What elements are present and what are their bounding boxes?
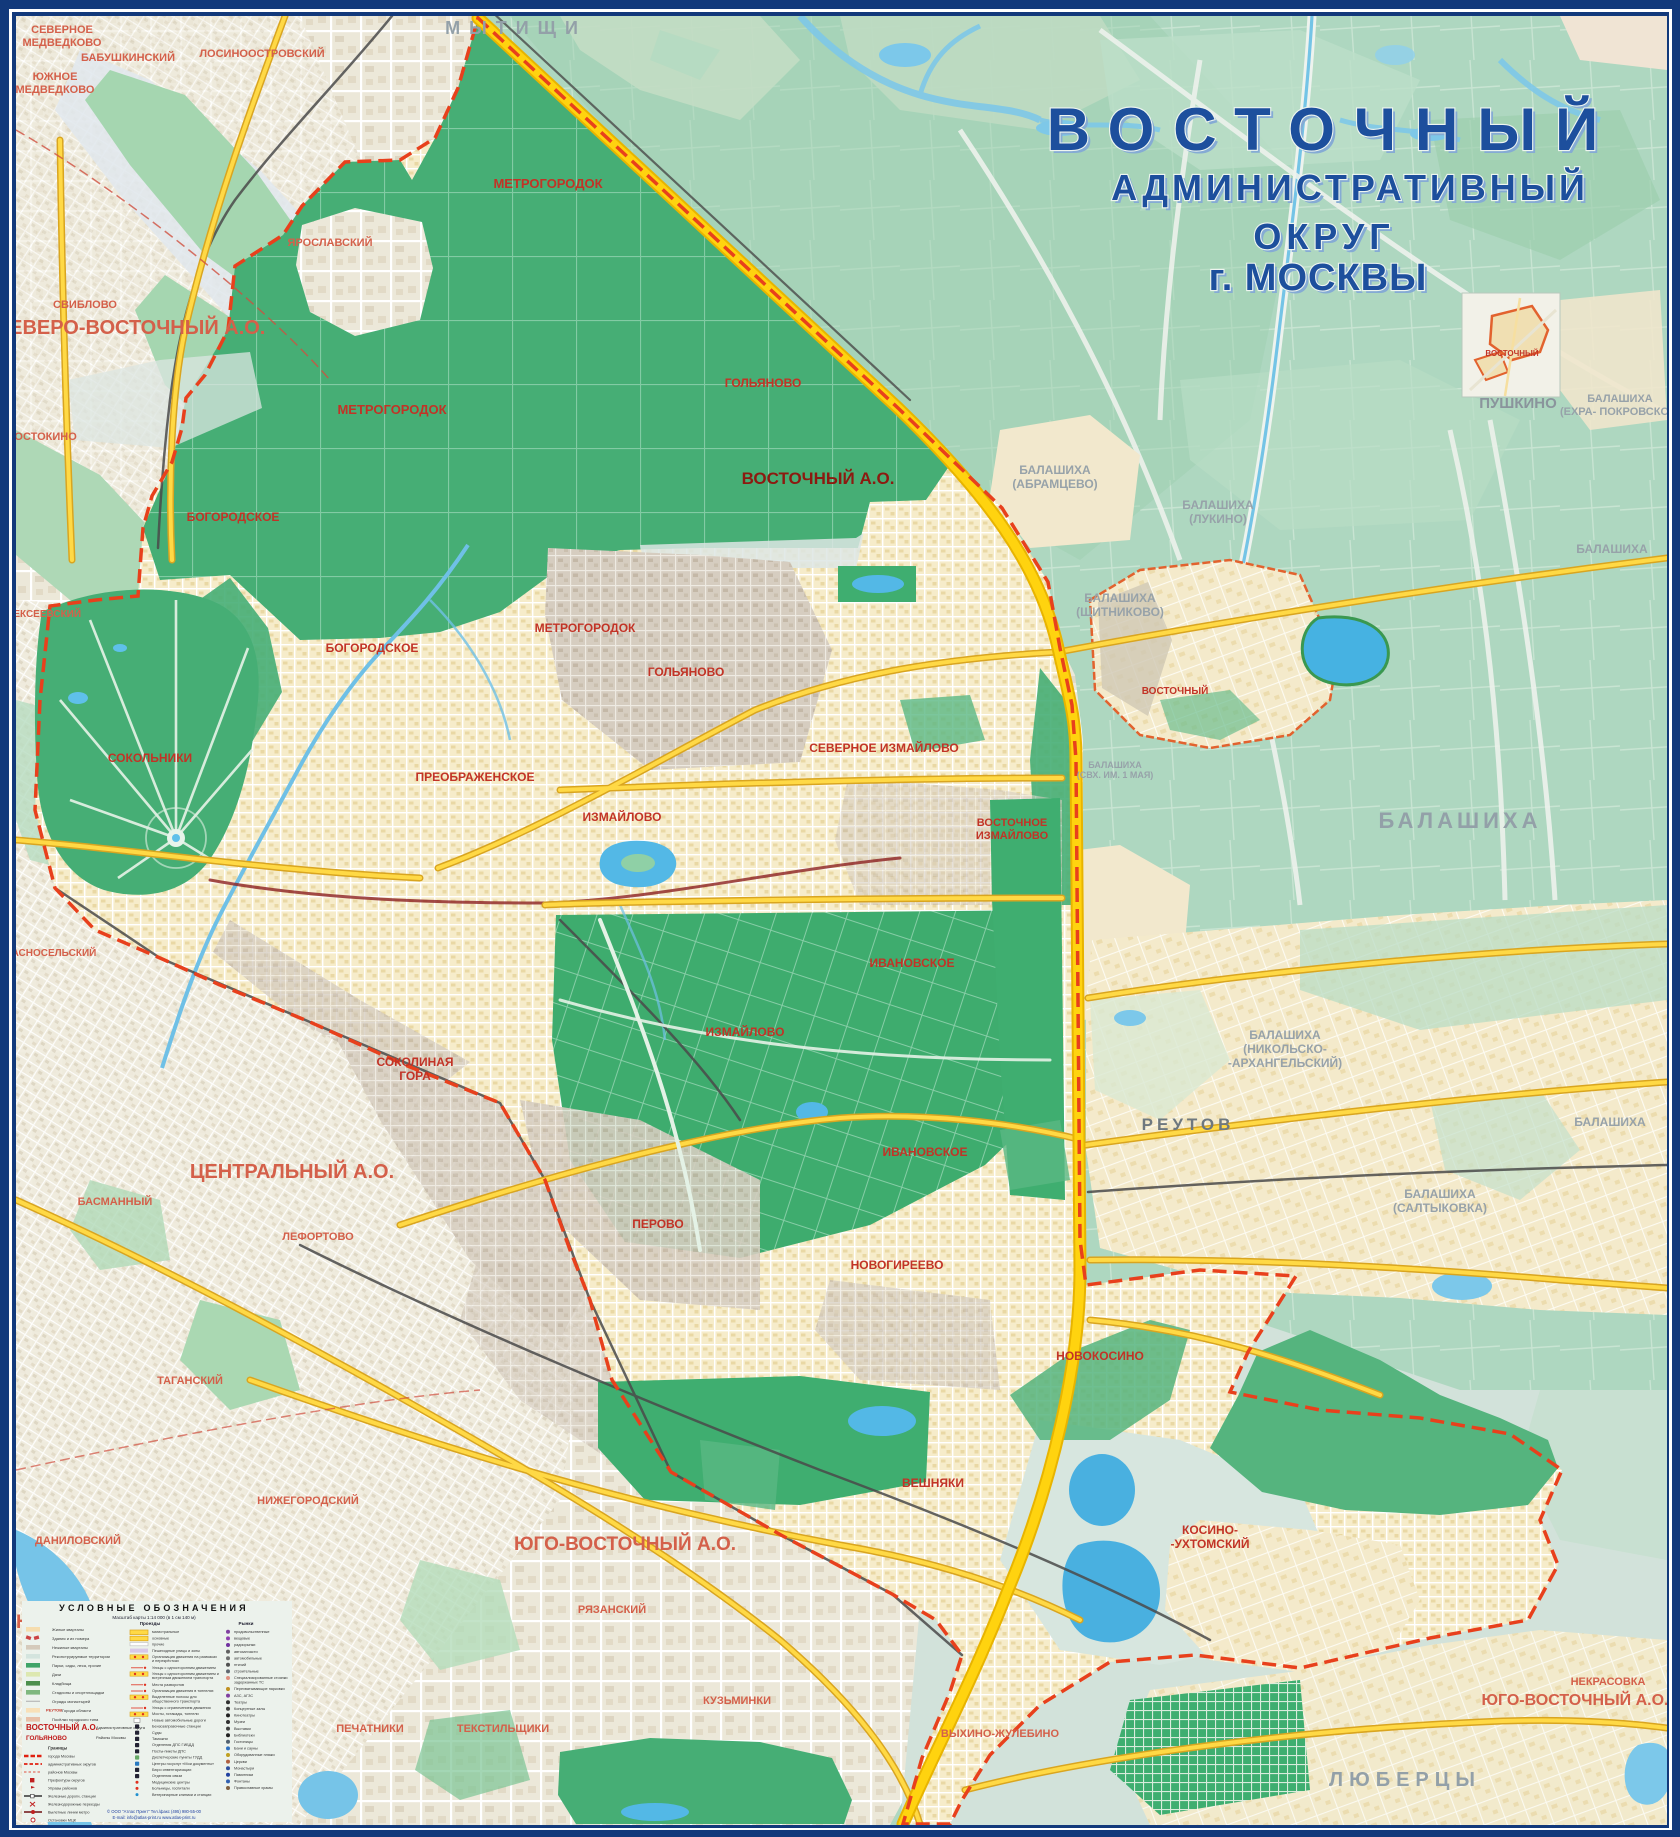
- svg-text:Улицы с односторонним движение: Улицы с односторонним движением: [152, 1666, 216, 1670]
- svg-text:КУЗЬМИНКИ: КУЗЬМИНКИ: [703, 1695, 771, 1707]
- svg-text:БАЛАШИХА: БАЛАШИХА: [1587, 393, 1653, 405]
- svg-text:Православные храмы: Православные храмы: [234, 1786, 273, 1790]
- svg-text:РЯЗАНСКИЙ: РЯЗАНСКИЙ: [578, 1603, 646, 1616]
- svg-text:БАЛАШИХА: БАЛАШИХА: [1574, 1115, 1646, 1129]
- svg-text:Реконструируемые территории: Реконструируемые территории: [52, 1654, 110, 1659]
- svg-text:БОГОРОДСКОЕ: БОГОРОДСКОЕ: [326, 641, 419, 655]
- svg-text:основные: основные: [152, 1636, 169, 1640]
- svg-text:МЕДВЕДКОВО: МЕДВЕДКОВО: [16, 84, 95, 96]
- svg-text:АДМИНИСТРАТИВНЫЙ: АДМИНИСТРАТИВНЫЙ: [1111, 166, 1589, 208]
- svg-text:УСЛОВНЫЕ ОБОЗНАЧЕНИЯ: УСЛОВНЫЕ ОБОЗНАЧЕНИЯ: [59, 1603, 249, 1613]
- svg-text:ОКРУГ: ОКРУГ: [1253, 216, 1394, 257]
- svg-text:КОСИНО-: КОСИНО-: [1182, 1523, 1238, 1537]
- svg-text:НЕКРАСОВКА: НЕКРАСОВКА: [1571, 1676, 1646, 1688]
- svg-text:ВОСТОЧНЫЙ: ВОСТОЧНЫЙ: [1047, 96, 1618, 163]
- svg-text:(СВХ. ИМ. 1 МАЯ): (СВХ. ИМ. 1 МАЯ): [1077, 770, 1154, 780]
- svg-text:Железнодорожные переезды: Железнодорожные переезды: [48, 1803, 100, 1807]
- svg-text:города Москвы: города Москвы: [48, 1755, 75, 1759]
- svg-text:Бензозаправочные станции: Бензозаправочные станции: [152, 1725, 201, 1729]
- svg-text:Бани и сауны: Бани и сауны: [234, 1747, 258, 1751]
- svg-text:ТАГАНСКИЙ: ТАГАНСКИЙ: [157, 1374, 223, 1387]
- svg-text:административных округов: административных округов: [48, 1763, 96, 1767]
- svg-text:ВОСТОЧНЫЙ: ВОСТОЧНЫЙ: [1142, 684, 1209, 697]
- svg-text:ЛОСИНООСТРОВСКИЙ: ЛОСИНООСТРОВСКИЙ: [199, 47, 324, 60]
- svg-text:БОГОРОДСКОЕ: БОГОРОДСКОЕ: [187, 510, 280, 524]
- svg-text:вещевые: вещевые: [234, 1637, 250, 1641]
- svg-text:(САЛТЫКОВКА): (САЛТЫКОВКА): [1393, 1201, 1487, 1215]
- svg-text:ИЗМАЙЛОВО: ИЗМАЙЛОВО: [976, 829, 1049, 842]
- svg-text:ГОРА: ГОРА: [399, 1069, 431, 1083]
- svg-text:ГОЛЬЯНОВО: ГОЛЬЯНОВО: [725, 376, 802, 390]
- svg-text:ВЕШНЯКИ: ВЕШНЯКИ: [902, 1476, 964, 1490]
- svg-text:встречным движением транспорта: встречным движением транспорта: [152, 1676, 214, 1680]
- svg-text:СЕВЕРНОЕ ИЗМАЙЛОВО: СЕВЕРНОЕ ИЗМАЙЛОВО: [809, 740, 959, 755]
- svg-text:строительные: строительные: [234, 1670, 259, 1674]
- svg-text:ИВАНОВСКОЕ: ИВАНОВСКОЕ: [870, 956, 955, 970]
- svg-text:Оборудованные пляжи: Оборудованные пляжи: [234, 1753, 275, 1757]
- svg-text:БАЛАШИХА: БАЛАШИХА: [1019, 463, 1091, 477]
- svg-text:ГОЛЬЯНОВО: ГОЛЬЯНОВО: [26, 1735, 67, 1742]
- svg-text:-АРХАНГЕЛЬСКИЙ): -АРХАНГЕЛЬСКИЙ): [1228, 1055, 1342, 1070]
- svg-text:МЕТРОГОРОДОК: МЕТРОГОРОДОК: [337, 402, 446, 417]
- svg-text:(НИКОЛЬСКО-: (НИКОЛЬСКО-: [1243, 1042, 1327, 1056]
- svg-text:(АБРАМЦЕВО): (АБРАМЦЕВО): [1012, 477, 1097, 491]
- svg-text:СОКОЛИНАЯ: СОКОЛИНАЯ: [376, 1055, 453, 1069]
- svg-text:© ООО "Атлас Принт" Тел./фак: © ООО "Атлас Принт" Тел./факс (495) 980-…: [107, 1809, 202, 1814]
- svg-text:Медицинские центры: Медицинские центры: [152, 1780, 190, 1784]
- svg-text:ИЗМАЙЛОВО: ИЗМАЙЛОВО: [583, 809, 662, 824]
- svg-text:ИЗМАЙЛОВО: ИЗМАЙЛОВО: [706, 1024, 785, 1039]
- svg-text:автозапчасти: автозапчасти: [234, 1650, 258, 1654]
- svg-text:НИЖЕГОРОДСКИЙ: НИЖЕГОРОДСКИЙ: [257, 1494, 359, 1507]
- svg-text:НОВОКОСИНО: НОВОКОСИНО: [1056, 1349, 1144, 1363]
- svg-text:Посёлки городского типа: Посёлки городского типа: [52, 1717, 99, 1722]
- svg-text:БАЛАШИХА: БАЛАШИХА: [1404, 1187, 1476, 1201]
- svg-text:АЗС, АГЗС: АЗС, АГЗС: [234, 1694, 253, 1698]
- svg-text:Центры госуслуг «Мои документы: Центры госуслуг «Мои документы»: [152, 1762, 214, 1766]
- svg-text:задержанных ТС: задержанных ТС: [234, 1680, 264, 1684]
- svg-text:Рынки: Рынки: [239, 1621, 254, 1626]
- svg-text:ДАНИЛОВСКИЙ: ДАНИЛОВСКИЙ: [35, 1534, 121, 1547]
- svg-text:Музеи: Музеи: [234, 1720, 245, 1724]
- svg-text:РЕУТОВ: РЕУТОВ: [1142, 1115, 1235, 1134]
- svg-text:Таможни: Таможни: [152, 1737, 168, 1741]
- svg-text:(ЩИТНИКОВО): (ЩИТНИКОВО): [1076, 605, 1164, 619]
- svg-text:Церкви: Церкви: [234, 1760, 247, 1764]
- svg-text:Места разворотов: Места разворотов: [152, 1683, 184, 1687]
- svg-text:общественного транспорта: общественного транспорта: [152, 1699, 201, 1703]
- svg-text:БАЛАШИХА: БАЛАШИХА: [1182, 498, 1254, 512]
- svg-text:Управы районов: Управы районов: [48, 1787, 77, 1791]
- svg-text:(ЛУКИНО): (ЛУКИНО): [1189, 512, 1247, 526]
- svg-text:ЮГО-ВОСТОЧНЫЙ А.О.: ЮГО-ВОСТОЧНЫЙ А.О.: [1481, 1690, 1668, 1709]
- svg-text:ГОЛЬЯНОВО: ГОЛЬЯНОВО: [648, 665, 725, 679]
- svg-text:Парки, сады, леса, прочие: Парки, сады, леса, прочие: [52, 1663, 102, 1668]
- svg-text:(ЕХРА- ПОКРОВСКОЕ): (ЕХРА- ПОКРОВСКОЕ): [1560, 406, 1680, 418]
- svg-text:Монастыри: Монастыри: [234, 1766, 254, 1770]
- svg-text:Выставки: Выставки: [234, 1727, 251, 1731]
- svg-text:ВОСТОЧНЫЙ А.О.: ВОСТОЧНЫЙ А.О.: [26, 1723, 98, 1732]
- svg-text:Здания и их номера: Здания и их номера: [52, 1636, 90, 1641]
- svg-text:Кладбища: Кладбища: [52, 1681, 72, 1686]
- svg-text:ПЕЧАТНИКИ: ПЕЧАТНИКИ: [336, 1723, 404, 1735]
- svg-text:ЮЖНОЕ: ЮЖНОЕ: [33, 71, 78, 83]
- svg-text:БАСМАННЫЙ: БАСМАННЫЙ: [78, 1195, 153, 1208]
- svg-text:Гостиницы: Гостиницы: [234, 1740, 253, 1744]
- svg-text:Мосты, эстакады, тоннели: Мосты, эстакады, тоннели: [152, 1712, 199, 1716]
- svg-text:Суды: Суды: [152, 1731, 162, 1735]
- svg-text:МЫТИЩИ: МЫТИЩИ: [445, 18, 587, 38]
- svg-text:БАЛАШИХА: БАЛАШИХА: [1088, 760, 1142, 770]
- svg-text:Железные дороги, станции: Железные дороги, станции: [48, 1795, 96, 1799]
- svg-text:Отделения связи: Отделения связи: [152, 1774, 182, 1778]
- svg-text:птичий: птичий: [234, 1663, 246, 1667]
- svg-text:Больницы, госпитали: Больницы, госпитали: [152, 1787, 190, 1791]
- svg-text:г. МОСКВЫ: г. МОСКВЫ: [1209, 257, 1428, 299]
- svg-text:БАБУШКИНСКИЙ: БАБУШКИНСКИЙ: [81, 51, 175, 64]
- svg-text:СВИБЛОВО: СВИБЛОВО: [53, 299, 117, 311]
- svg-text:СЕВЕРО-ВОСТОЧНЫЙ А.О.: СЕВЕРО-ВОСТОЧНЫЙ А.О.: [0, 315, 265, 339]
- svg-text:E-mail: info@atlas-print.ru: E-mail: info@atlas-print.ru www.atlas-pr…: [113, 1815, 197, 1820]
- svg-text:прочие: прочие: [152, 1643, 164, 1647]
- svg-text:ТЕКСТИЛЬЩИКИ: ТЕКСТИЛЬЩИКИ: [457, 1723, 549, 1735]
- svg-text:ПУШКИНО: ПУШКИНО: [1479, 395, 1557, 412]
- svg-text:Города области: Города области: [62, 1708, 91, 1713]
- svg-text:Памятники: Памятники: [234, 1773, 253, 1777]
- svg-text:ЛЕФОРТОВО: ЛЕФОРТОВО: [282, 1231, 354, 1243]
- svg-text:Вылетные линии метро: Вылетные линии метро: [48, 1811, 89, 1815]
- svg-text:Концертные залы: Концертные залы: [234, 1707, 265, 1711]
- svg-text:ЯРОСЛАВСКИЙ: ЯРОСЛАВСКИЙ: [288, 236, 373, 249]
- svg-text:-УХТОМСКИЙ: -УХТОМСКИЙ: [1170, 1536, 1249, 1551]
- svg-text:МЕТРОГОРОДОК: МЕТРОГОРОДОК: [493, 176, 602, 191]
- svg-text:ВОСТОЧНЫЙ: ВОСТОЧНЫЙ: [1485, 349, 1539, 358]
- svg-text:Нежилые кварталы: Нежилые кварталы: [52, 1645, 88, 1650]
- svg-text:Жилые кварталы: Жилые кварталы: [52, 1627, 84, 1632]
- svg-text:ВОСТОЧНОЕ: ВОСТОЧНОЕ: [977, 817, 1047, 829]
- svg-text:БАЛАШИХА: БАЛАШИХА: [1084, 591, 1156, 605]
- svg-text:Проезды: Проезды: [140, 1621, 161, 1626]
- svg-text:Пешеходные улицы и зоны: Пешеходные улицы и зоны: [152, 1649, 200, 1653]
- svg-text:БАЛАШИХА: БАЛАШИХА: [1249, 1028, 1321, 1042]
- svg-text:Кинотеатры: Кинотеатры: [234, 1714, 255, 1718]
- svg-text:РОСТОКИНО: РОСТОКИНО: [7, 431, 77, 443]
- svg-text:Остановки МЦК: Остановки МЦК: [48, 1819, 77, 1823]
- svg-text:Ограды монастырей: Ограды монастырей: [52, 1699, 90, 1704]
- svg-text:Театры: Театры: [234, 1700, 247, 1704]
- svg-text:Фонтаны: Фонтаны: [234, 1780, 250, 1784]
- svg-text:Стадионы и спортплощадки: Стадионы и спортплощадки: [52, 1690, 104, 1695]
- svg-text:ПЕРОВО: ПЕРОВО: [632, 1217, 684, 1231]
- svg-text:Библиотеки: Библиотеки: [234, 1733, 255, 1737]
- svg-text:радиорынки: радиорынки: [234, 1643, 255, 1647]
- svg-text:Префектуры округов: Префектуры округов: [48, 1779, 85, 1783]
- svg-text:автомобильные: автомобильные: [234, 1656, 262, 1660]
- svg-text:НОВОГИРЕЕВО: НОВОГИРЕЕВО: [851, 1258, 944, 1272]
- svg-text:ВЫХИНО-ЖУЛЕБИНО: ВЫХИНО-ЖУЛЕБИНО: [941, 1728, 1060, 1740]
- svg-text:Новые автомобильные дороги: Новые автомобильные дороги: [152, 1718, 206, 1722]
- svg-text:ЮГО-ВОСТОЧНЫЙ А.О.: ЮГО-ВОСТОЧНЫЙ А.О.: [514, 1533, 736, 1555]
- svg-text:магистральные: магистральные: [152, 1630, 179, 1634]
- svg-text:БАЛАШИХА: БАЛАШИХА: [1379, 808, 1542, 833]
- svg-text:МЕТРОГОРОДОК: МЕТРОГОРОДОК: [535, 621, 636, 635]
- svg-text:Организация движения в тоннеля: Организация движения в тоннелях: [152, 1689, 214, 1693]
- svg-text:РЕУТОВ: РЕУТОВ: [46, 1708, 62, 1713]
- svg-text:Бюро инвентаризации: Бюро инвентаризации: [152, 1768, 191, 1772]
- svg-text:продовольственные: продовольственные: [234, 1630, 269, 1634]
- svg-text:ЦЕНТРАЛЬНЫЙ А.О.: ЦЕНТРАЛЬНЫЙ А.О.: [190, 1159, 394, 1183]
- svg-text:ЛЮБЕРЦЫ: ЛЮБЕРЦЫ: [1329, 1769, 1481, 1791]
- svg-text:Дачи: Дачи: [52, 1672, 61, 1677]
- svg-text:МЕДВЕДКОВО: МЕДВЕДКОВО: [23, 37, 102, 49]
- svg-text:ВОСТОЧНЫЙ А.О.: ВОСТОЧНЫЙ А.О.: [742, 469, 895, 488]
- svg-text:ПРЕОБРАЖЕНСКОЕ: ПРЕОБРАЖЕНСКОЕ: [415, 770, 534, 784]
- svg-text:Посты-пикеты ДПС: Посты-пикеты ДПС: [152, 1749, 186, 1753]
- svg-text:Районы Москвы: Районы Москвы: [96, 1735, 126, 1740]
- svg-text:и перекрёстках: и перекрёстках: [152, 1659, 179, 1663]
- svg-text:СОКОЛЬНИКИ: СОКОЛЬНИКИ: [108, 751, 192, 765]
- svg-text:Улицы с ограничением движения: Улицы с ограничением движения: [152, 1706, 211, 1710]
- svg-text:Границы: Границы: [48, 1746, 67, 1751]
- svg-text:ИВАНОВСКОЕ: ИВАНОВСКОЕ: [883, 1145, 968, 1159]
- svg-text:Отделения ДПС ГИБДД: Отделения ДПС ГИБДД: [152, 1743, 194, 1747]
- svg-text:БАЛАШИХА: БАЛАШИХА: [1576, 542, 1648, 556]
- svg-text:Масштаб карты 1:14 000 (в 1 с: Масштаб карты 1:14 000 (в 1 см 140 м): [112, 1615, 196, 1620]
- svg-text:Перехватывающие парковки: Перехватывающие парковки: [234, 1687, 285, 1691]
- svg-text:СЕВЕРНОЕ: СЕВЕРНОЕ: [31, 24, 93, 36]
- svg-text:районов Москвы: районов Москвы: [48, 1771, 78, 1775]
- svg-text:Ветеринарные клиники и станции: Ветеринарные клиники и станции: [152, 1793, 211, 1797]
- svg-text:Диспетчерские пункты ГУДД: Диспетчерские пункты ГУДД: [152, 1756, 203, 1760]
